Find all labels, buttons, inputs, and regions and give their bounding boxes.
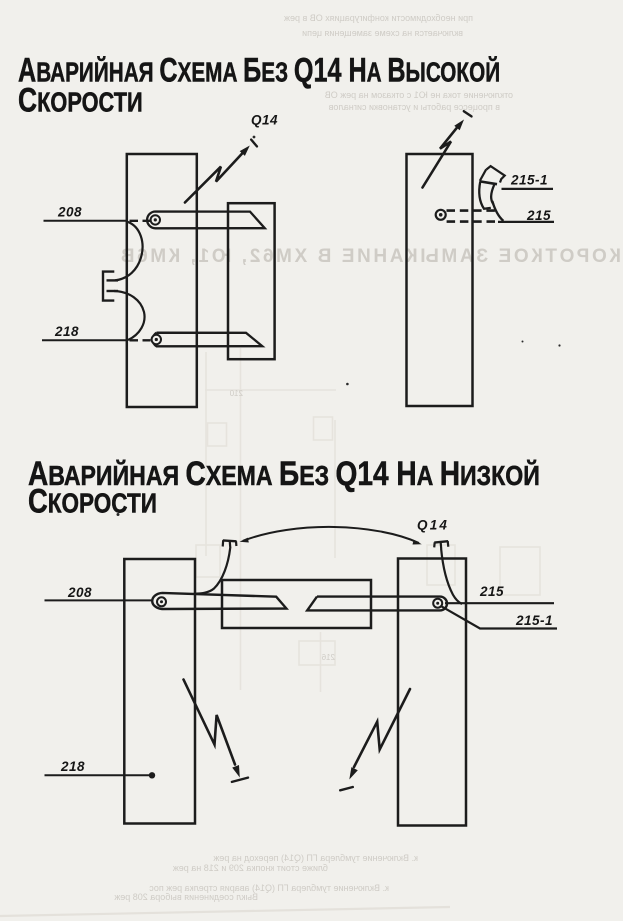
- svg-text:к. Включение тумблера ГП (Q14): к. Включение тумблера ГП (Q14) переход н…: [213, 853, 418, 863]
- svg-text:210: 210: [229, 389, 243, 398]
- svg-text:215-1: 215-1: [510, 173, 548, 188]
- svg-text:208: 208: [57, 205, 82, 220]
- svg-text:216: 216: [321, 653, 335, 662]
- svg-text:218: 218: [54, 324, 79, 339]
- svg-text:АВАРИЙНАЯ СХЕМА БЕЗ Q14 НА ВЫС: АВАРИЙНАЯ СХЕМА БЕЗ Q14 НА ВЫСОКОЙ: [18, 52, 500, 90]
- svg-text:215: 215: [479, 584, 504, 599]
- svg-text:СКОРОСТИ: СКОРОСТИ: [28, 481, 157, 520]
- svg-text:Q14: Q14: [251, 113, 278, 128]
- svg-text:в процессе работы и установки: в процессе работы и установки сигналов: [328, 102, 500, 112]
- svg-text:КОРОТКОЕ ЗАМЫКАНИЕ В ХМ62, Ю1,: КОРОТКОЕ ЗАМЫКАНИЕ В ХМ62, Ю1, КМ6В: [118, 246, 621, 267]
- svg-text:при необходимости конфигурация: при необходимости конфигурациях ОВ в реж: [284, 13, 473, 23]
- svg-text:208: 208: [67, 585, 92, 600]
- svg-text:отключение тока не Ю1 с отказо: отключение тока не Ю1 с отказом на реж О…: [325, 90, 513, 100]
- svg-text:ближе стоит кнопка 209 и 218 н: ближе стоит кнопка 209 и 218 на реж: [173, 863, 328, 873]
- svg-text:Q14: Q14: [417, 518, 449, 533]
- svg-text:215: 215: [526, 208, 551, 223]
- svg-text:включается на схеме замещения: включается на схеме замещения цепи: [302, 28, 463, 38]
- svg-text:Выкл соединения выбора 208 реж: Выкл соединения выбора 208 реж: [114, 892, 258, 902]
- svg-text:СКОРОСТИ: СКОРОСТИ: [18, 81, 143, 119]
- svg-text:218: 218: [60, 759, 85, 774]
- svg-text:215-1: 215-1: [515, 613, 553, 628]
